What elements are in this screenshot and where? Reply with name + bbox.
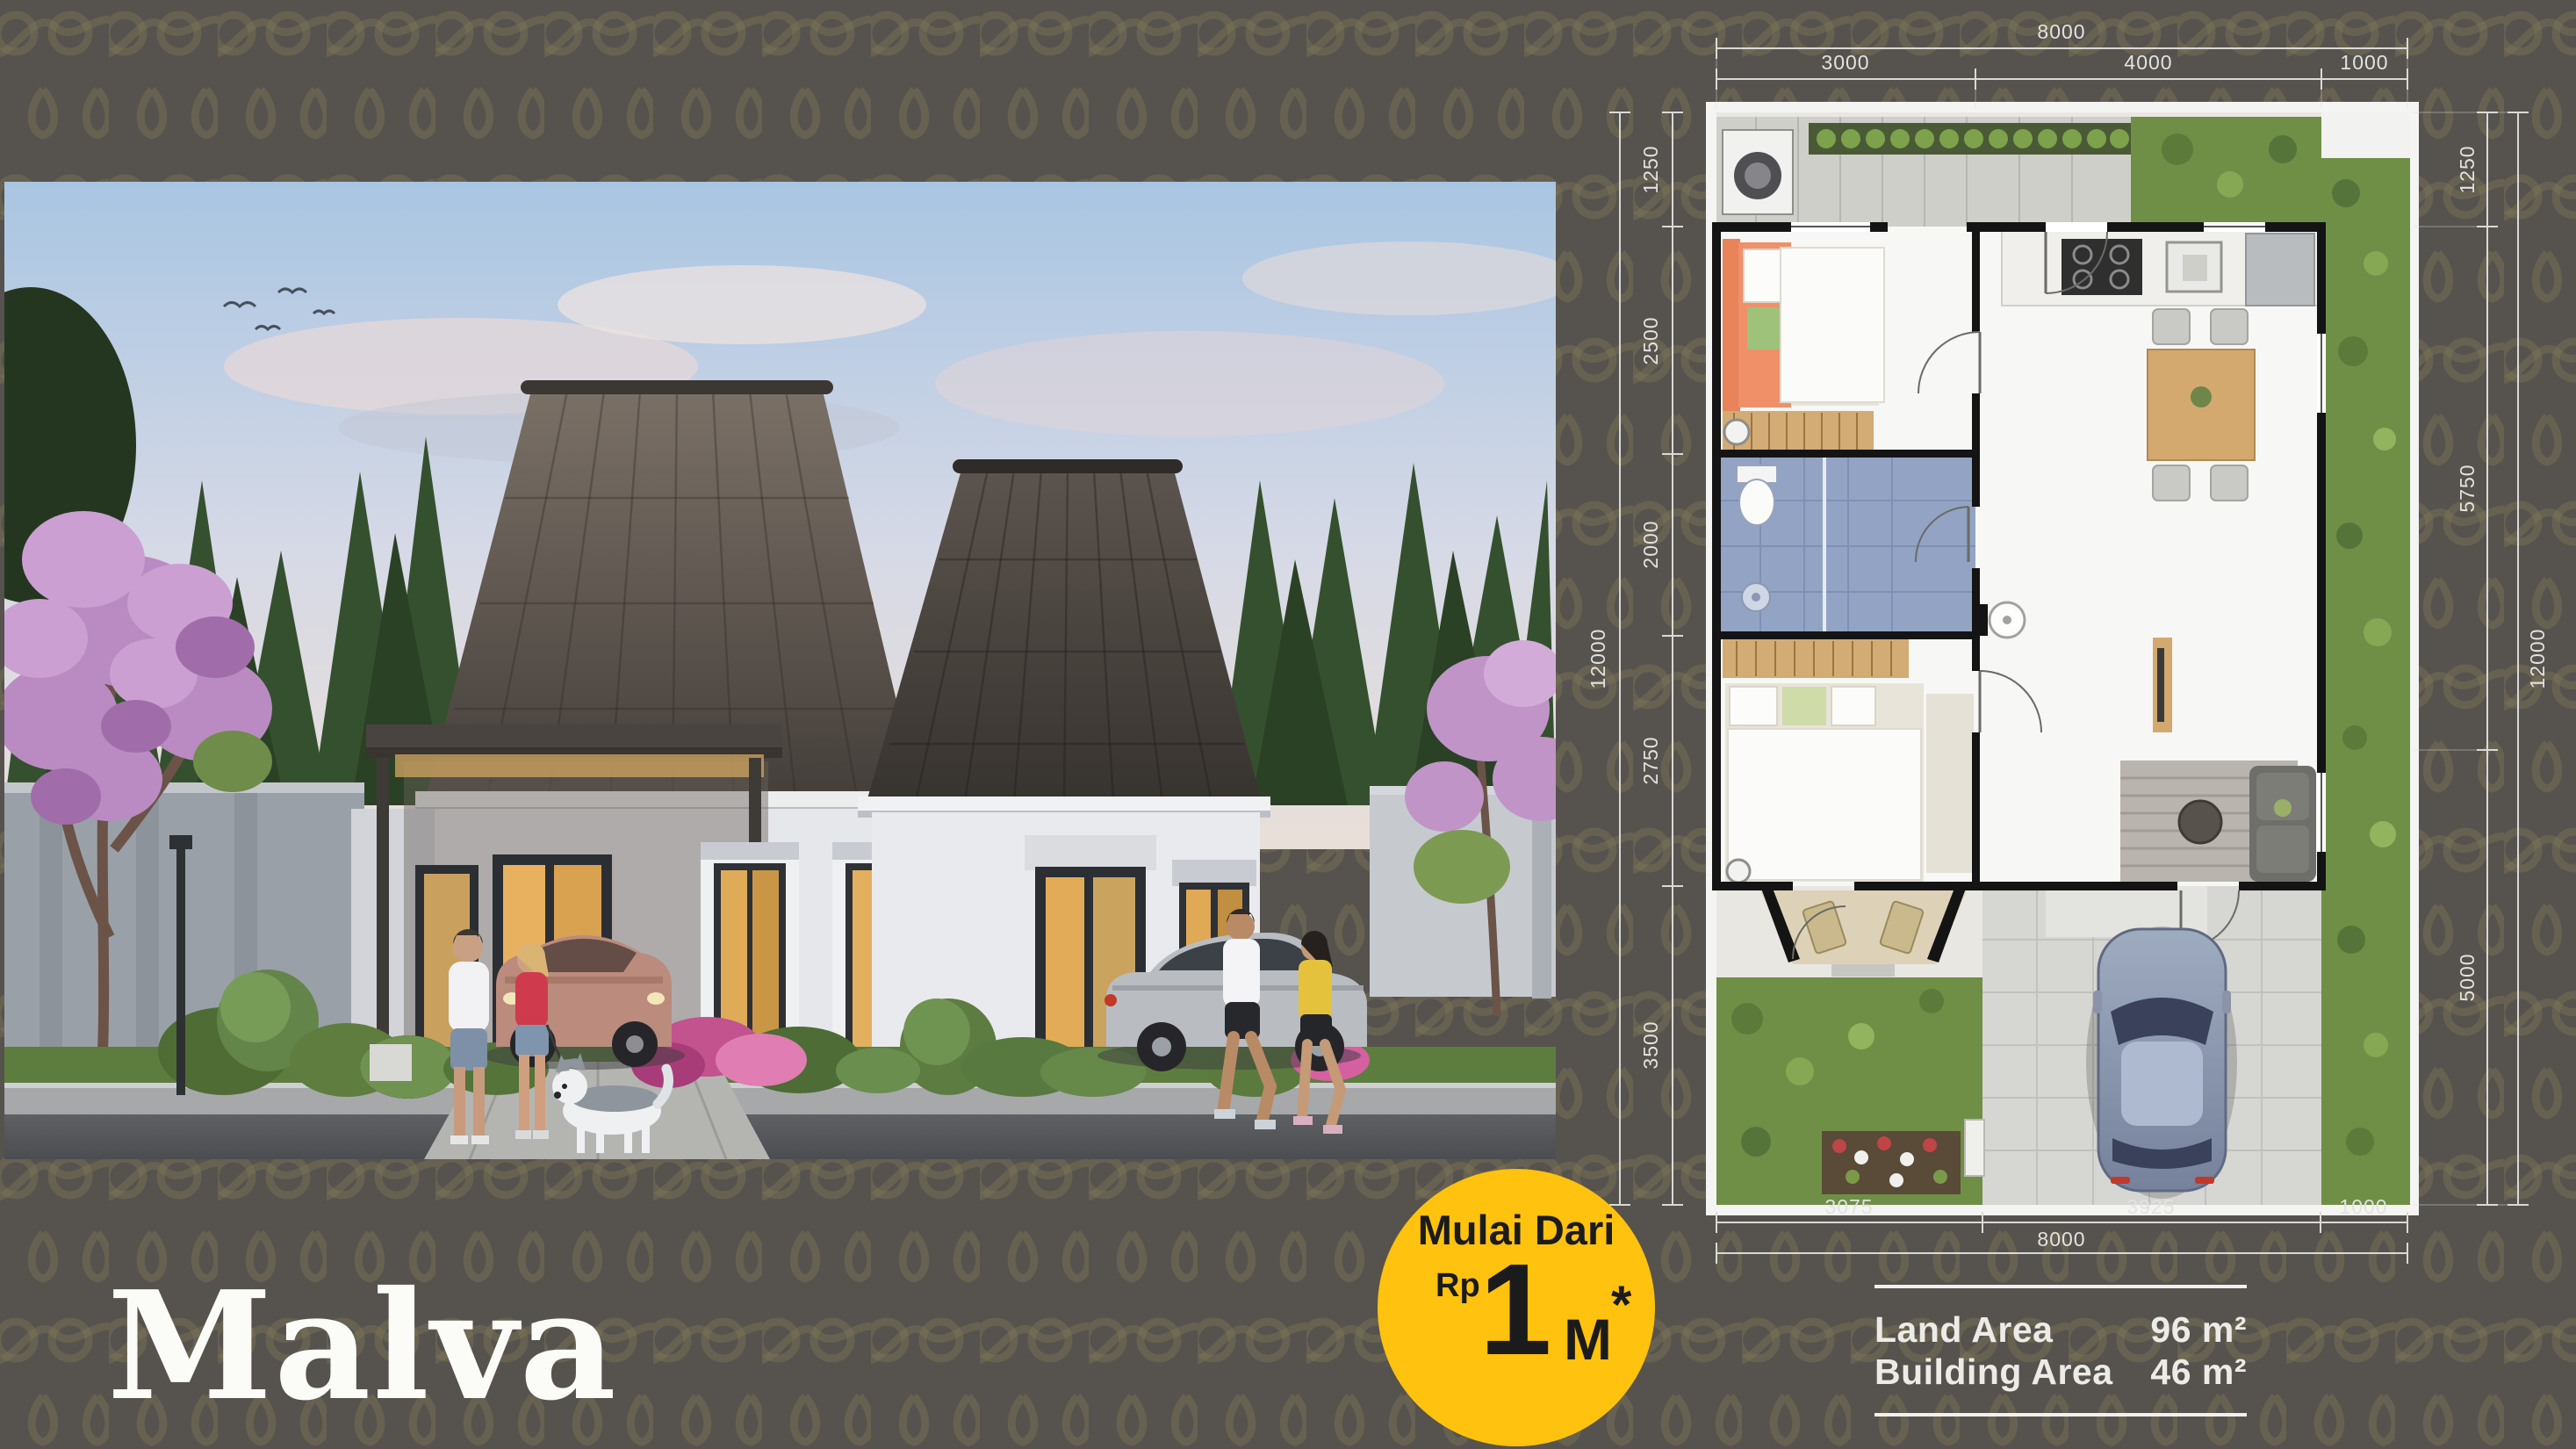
land-area-value: 96 m² bbox=[2150, 1309, 2247, 1351]
dim-right-seg1: 5750 bbox=[2456, 464, 2479, 512]
project-name: Malva bbox=[107, 1272, 618, 1421]
dim-left-seg2: 2000 bbox=[1639, 520, 1662, 568]
dim-right-seg0: 1250 bbox=[2456, 145, 2479, 193]
bed-2 bbox=[1725, 683, 1974, 883]
price-unit: M bbox=[1564, 1306, 1612, 1373]
land-area-row: Land Area 96 m² bbox=[1874, 1309, 2247, 1352]
dim-top-seg2: 1000 bbox=[2340, 51, 2388, 74]
kitchen bbox=[2002, 230, 2318, 306]
building-area-row: Building Area 46 m² bbox=[1874, 1352, 2247, 1394]
dim-left-seg1: 2500 bbox=[1639, 316, 1662, 364]
house-photo bbox=[4, 182, 1556, 1159]
building-area-label: Building Area bbox=[1874, 1352, 2113, 1393]
price-amount: 1 bbox=[1479, 1236, 1551, 1385]
dim-left-total: 12000 bbox=[1587, 629, 1609, 689]
dim-bottom-seg0: 3075 bbox=[1824, 1195, 1873, 1218]
plan-car bbox=[2086, 926, 2237, 1199]
dim-left-seg4: 3500 bbox=[1639, 1020, 1662, 1069]
dim-top-seg0: 3000 bbox=[1821, 51, 1869, 74]
divider-bottom bbox=[1874, 1413, 2247, 1417]
floor-plan: 8000 3000 4000 1000 3075 3925 1000 8000 … bbox=[1572, 0, 2576, 1282]
dim-right-total: 12000 bbox=[2526, 629, 2549, 689]
building-area-value: 46 m² bbox=[2150, 1352, 2247, 1393]
dim-bottom-seg2: 1000 bbox=[2339, 1195, 2387, 1218]
price-asterisk: * bbox=[1611, 1274, 1631, 1335]
dim-bottom-total: 8000 bbox=[2037, 1228, 2085, 1251]
price-badge: Mulai Dari Rp 1 M * bbox=[1378, 1169, 1655, 1446]
dim-bottom-seg1: 3925 bbox=[2126, 1195, 2175, 1218]
land-area-label: Land Area bbox=[1874, 1309, 2053, 1351]
brochure-page: 8000 3000 4000 1000 3075 3925 1000 8000 … bbox=[0, 0, 2576, 1449]
flower-bed bbox=[1822, 1131, 1961, 1194]
dim-right-seg2: 5000 bbox=[2456, 953, 2479, 1001]
plan-rooms bbox=[1716, 227, 2321, 977]
price-currency: Rp bbox=[1436, 1267, 1480, 1305]
divider-top bbox=[1874, 1285, 2247, 1288]
dim-left-seg0: 1250 bbox=[1639, 145, 1662, 193]
info-panel: Land Area 96 m² Building Area 46 m² bbox=[1874, 1285, 2247, 1417]
dim-left-seg3: 2750 bbox=[1639, 736, 1662, 784]
dim-top-total: 8000 bbox=[2037, 20, 2085, 43]
dim-top-seg1: 4000 bbox=[2124, 51, 2172, 74]
